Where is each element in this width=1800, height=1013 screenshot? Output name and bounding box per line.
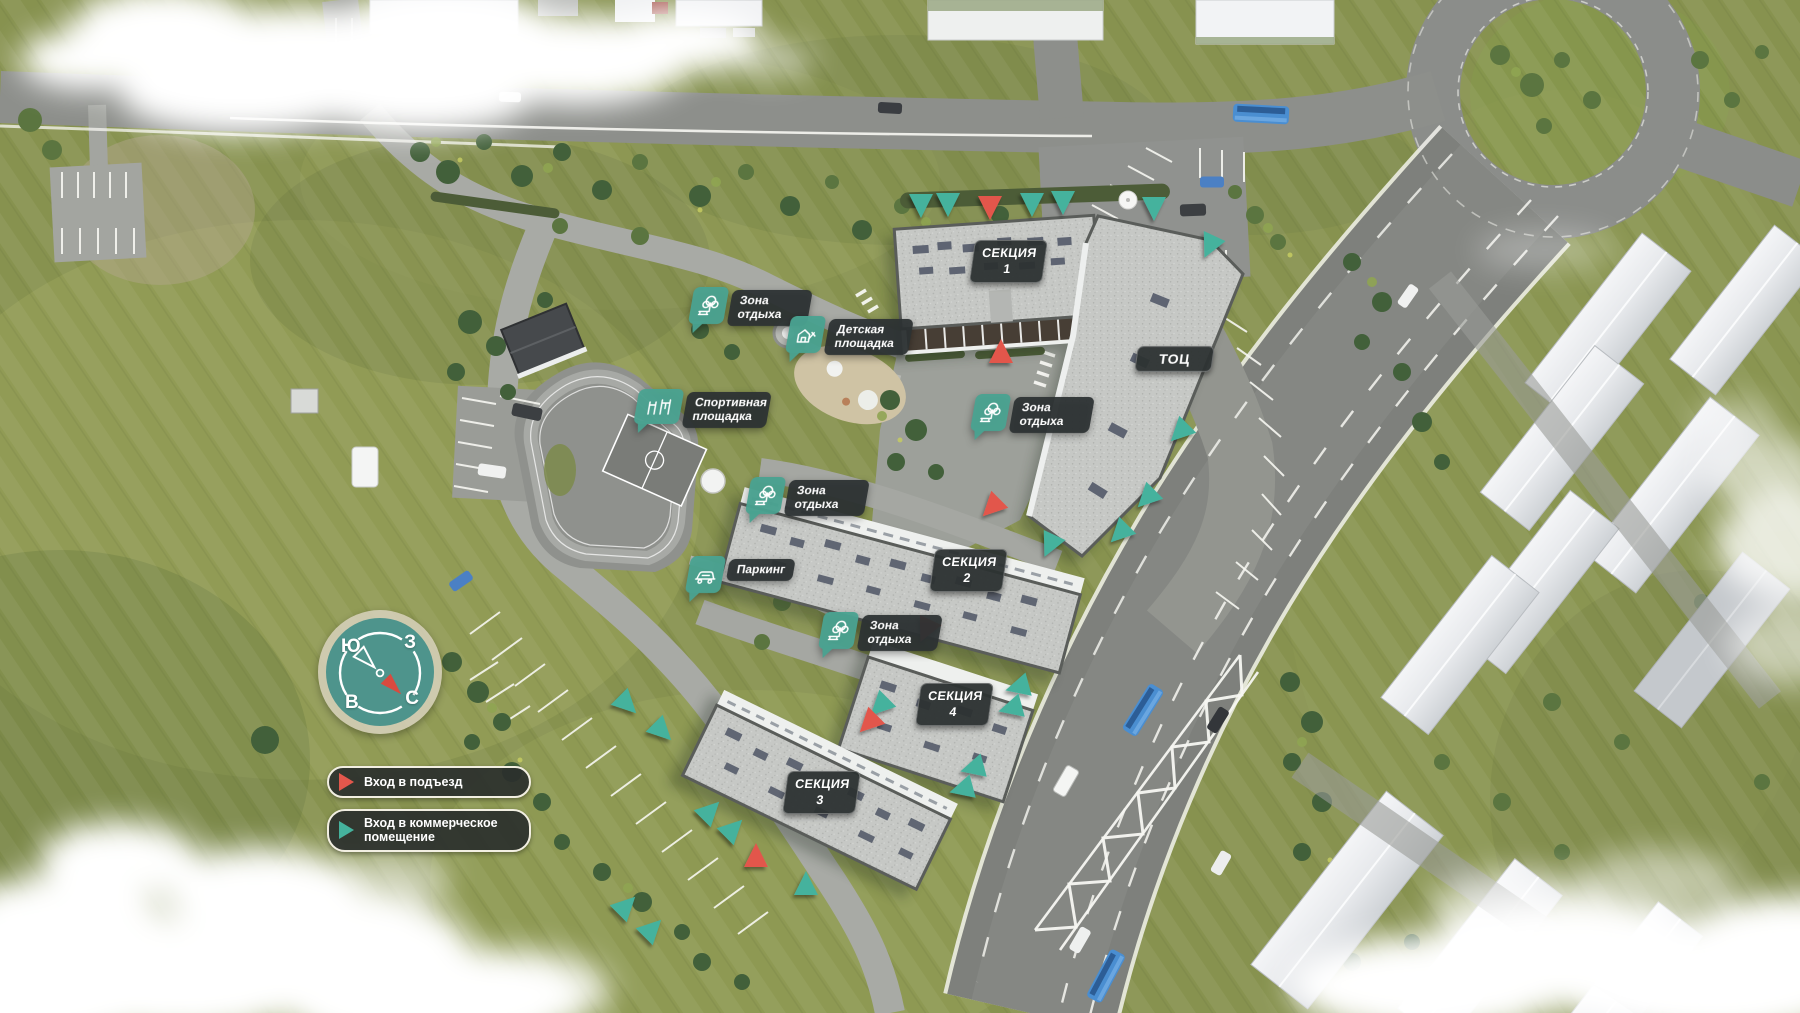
label-text: Зона отдыха [784,480,870,516]
compass-dial [318,610,442,734]
label-section-1[interactable]: СЕКЦИЯ1 [969,240,1047,283]
compass-south: Ю [341,636,361,658]
label-playground[interactable]: Детская площадка [785,316,915,355]
label-text: Детская площадка [824,319,914,355]
playhouse-icon [785,316,827,353]
label-text: Спортивная площадка [682,392,772,428]
label-zone-rest-2[interactable]: Зона отдыха [970,394,1096,433]
red-triangle-icon [339,773,354,791]
tree-bench-icon [970,394,1012,431]
legend: Вход в подъезд Вход в коммерческое помещ… [327,766,531,852]
label-text: Зона отдыха [1009,397,1095,433]
canopy [352,447,378,487]
label-parking[interactable]: Паркинг [685,556,797,593]
kiosk [291,389,318,413]
car-icon [685,556,727,593]
compass-east: В [345,692,359,714]
dome-structure [701,469,725,493]
label-text: Зона отдыха [857,615,943,651]
label-sports[interactable]: Спортивная площадка [633,389,773,428]
aerial-render [0,0,1800,1013]
compass-north: С [405,688,419,710]
label-section-2[interactable]: СЕКЦИЯ2 [929,549,1007,592]
legend-entrance-residential: Вход в подъезд [327,766,531,798]
workout-bars-icon [633,389,684,424]
tree-bench-icon [818,612,860,649]
tree-bench-icon [688,287,730,324]
label-toc[interactable]: ТОЦ [1134,346,1215,372]
compass-west: З [404,632,416,654]
masterplan-map: Зона отдыха Детская площадка Спортивная … [0,0,1800,1013]
legend-entrance-commercial: Вход в коммерческое помещение [327,809,531,852]
label-zone-rest-3[interactable]: Зона отдыха [745,477,871,516]
compass: Ю З В С [318,610,442,734]
label-section-3[interactable]: СЕКЦИЯ3 [782,771,860,814]
tree-bench-icon [745,477,787,514]
teal-triangle-icon [339,821,354,839]
label-section-4[interactable]: СЕКЦИЯ4 [915,683,993,726]
label-text: Паркинг [726,559,796,581]
label-zone-rest-4[interactable]: Зона отдыха [818,612,944,651]
